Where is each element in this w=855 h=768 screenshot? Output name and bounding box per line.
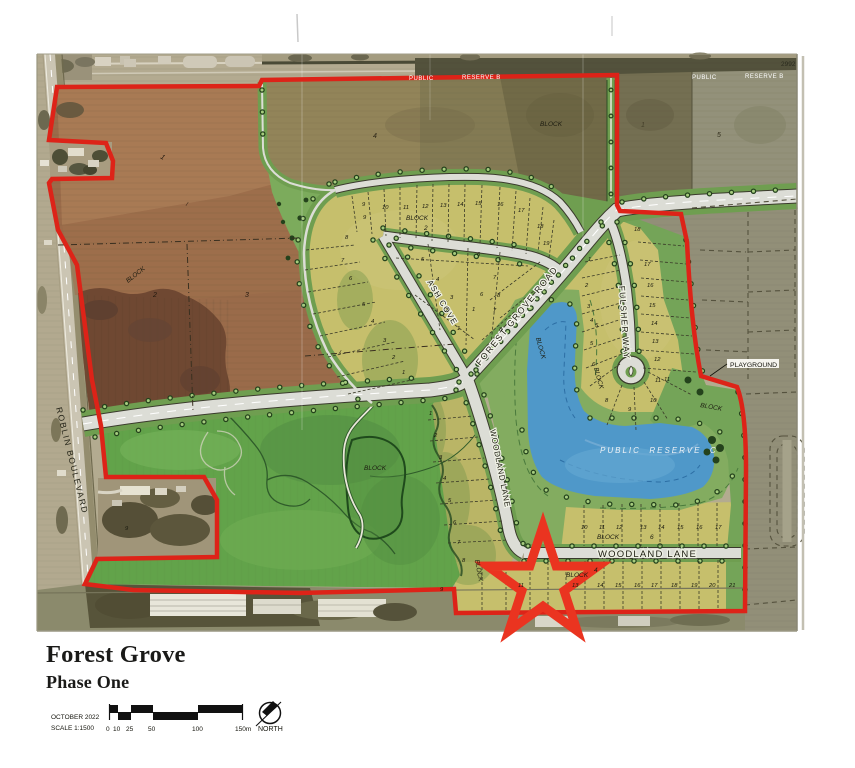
- svg-text:PUBLIC RESERVE C: PUBLIC RESERVE C: [600, 446, 718, 455]
- svg-text:13: 13: [572, 583, 579, 589]
- svg-text:17: 17: [518, 208, 525, 214]
- svg-text:15: 15: [475, 201, 482, 207]
- svg-text:1: 1: [641, 122, 645, 129]
- svg-text:12: 12: [654, 357, 661, 363]
- svg-text:BLOCK: BLOCK: [364, 465, 387, 472]
- svg-text:17: 17: [651, 583, 658, 589]
- svg-text:RESERVE B: RESERVE B: [462, 75, 501, 81]
- svg-text:15: 15: [677, 525, 684, 531]
- svg-text:10: 10: [113, 726, 121, 733]
- svg-text:6: 6: [650, 534, 654, 541]
- svg-text:20: 20: [708, 583, 716, 589]
- svg-text:10: 10: [382, 205, 389, 211]
- svg-text:18: 18: [537, 224, 544, 230]
- svg-text:25: 25: [126, 726, 134, 733]
- svg-text:OCTOBER 2022: OCTOBER 2022: [51, 714, 100, 721]
- svg-text:14: 14: [651, 321, 657, 327]
- svg-text:PLAYGROUND: PLAYGROUND: [730, 362, 777, 369]
- svg-text:12: 12: [616, 525, 623, 531]
- svg-text:RESERVE B: RESERVE B: [745, 74, 784, 80]
- svg-text:11: 11: [518, 583, 524, 589]
- svg-text:BLOCK: BLOCK: [566, 572, 589, 579]
- svg-text:13: 13: [652, 339, 659, 345]
- svg-text:150m: 150m: [235, 726, 251, 733]
- svg-text:19: 19: [691, 583, 698, 589]
- svg-text:10: 10: [650, 398, 657, 404]
- svg-text:SCALE 1:1500: SCALE 1:1500: [51, 725, 94, 732]
- svg-text:4: 4: [590, 318, 593, 324]
- svg-text:10: 10: [581, 525, 588, 531]
- svg-text:11: 11: [599, 525, 605, 531]
- svg-text:15: 15: [615, 583, 622, 589]
- svg-text:1: 1: [472, 307, 475, 313]
- svg-text:2992: 2992: [781, 61, 796, 68]
- svg-text:1: 1: [429, 411, 432, 417]
- svg-text:17: 17: [715, 525, 722, 531]
- svg-text:2: 2: [423, 225, 428, 232]
- svg-text:17: 17: [644, 262, 651, 268]
- svg-text:100: 100: [192, 726, 203, 733]
- svg-text:1: 1: [588, 257, 591, 263]
- svg-text:Phase One: Phase One: [46, 672, 129, 692]
- svg-text:5: 5: [717, 132, 721, 139]
- svg-text:BLOCK: BLOCK: [597, 534, 620, 541]
- svg-text:16: 16: [696, 525, 703, 531]
- svg-text:16: 16: [647, 283, 654, 289]
- svg-text:50: 50: [148, 726, 156, 733]
- svg-text:4: 4: [594, 567, 598, 574]
- svg-text:2: 2: [152, 292, 157, 299]
- svg-text:1: 1: [402, 370, 405, 376]
- svg-text:14: 14: [597, 583, 603, 589]
- svg-text:14: 14: [658, 525, 664, 531]
- svg-text:PUBLIC: PUBLIC: [692, 75, 717, 81]
- svg-text:12: 12: [422, 204, 429, 210]
- svg-text:4: 4: [373, 133, 377, 140]
- svg-text:18: 18: [634, 227, 641, 233]
- svg-text:19: 19: [543, 241, 550, 247]
- svg-text:15: 15: [649, 303, 656, 309]
- svg-text:11: 11: [664, 377, 670, 383]
- svg-text:0: 0: [106, 726, 110, 733]
- svg-text:PUBLIC: PUBLIC: [409, 76, 434, 82]
- svg-text:11: 11: [403, 205, 409, 211]
- svg-text:WOODLAND LANE: WOODLAND LANE: [598, 549, 697, 560]
- svg-text:4: 4: [371, 319, 374, 325]
- svg-text:16: 16: [497, 202, 504, 208]
- svg-text:13: 13: [440, 203, 447, 209]
- svg-text:1: 1: [457, 326, 460, 332]
- svg-text:3: 3: [245, 292, 249, 299]
- svg-text:18: 18: [671, 583, 678, 589]
- svg-text:BLOCK: BLOCK: [406, 215, 429, 222]
- svg-text:4: 4: [436, 277, 439, 283]
- svg-text:16: 16: [634, 583, 641, 589]
- svg-text:21: 21: [728, 583, 735, 589]
- svg-text:4: 4: [443, 476, 446, 482]
- svg-text:BLOCK: BLOCK: [540, 121, 563, 128]
- svg-text:Forest Grove: Forest Grove: [46, 641, 186, 668]
- svg-text:14: 14: [457, 202, 463, 208]
- svg-text:NORTH: NORTH: [258, 726, 283, 733]
- svg-text:11: 11: [655, 378, 661, 384]
- svg-text:13: 13: [640, 525, 647, 531]
